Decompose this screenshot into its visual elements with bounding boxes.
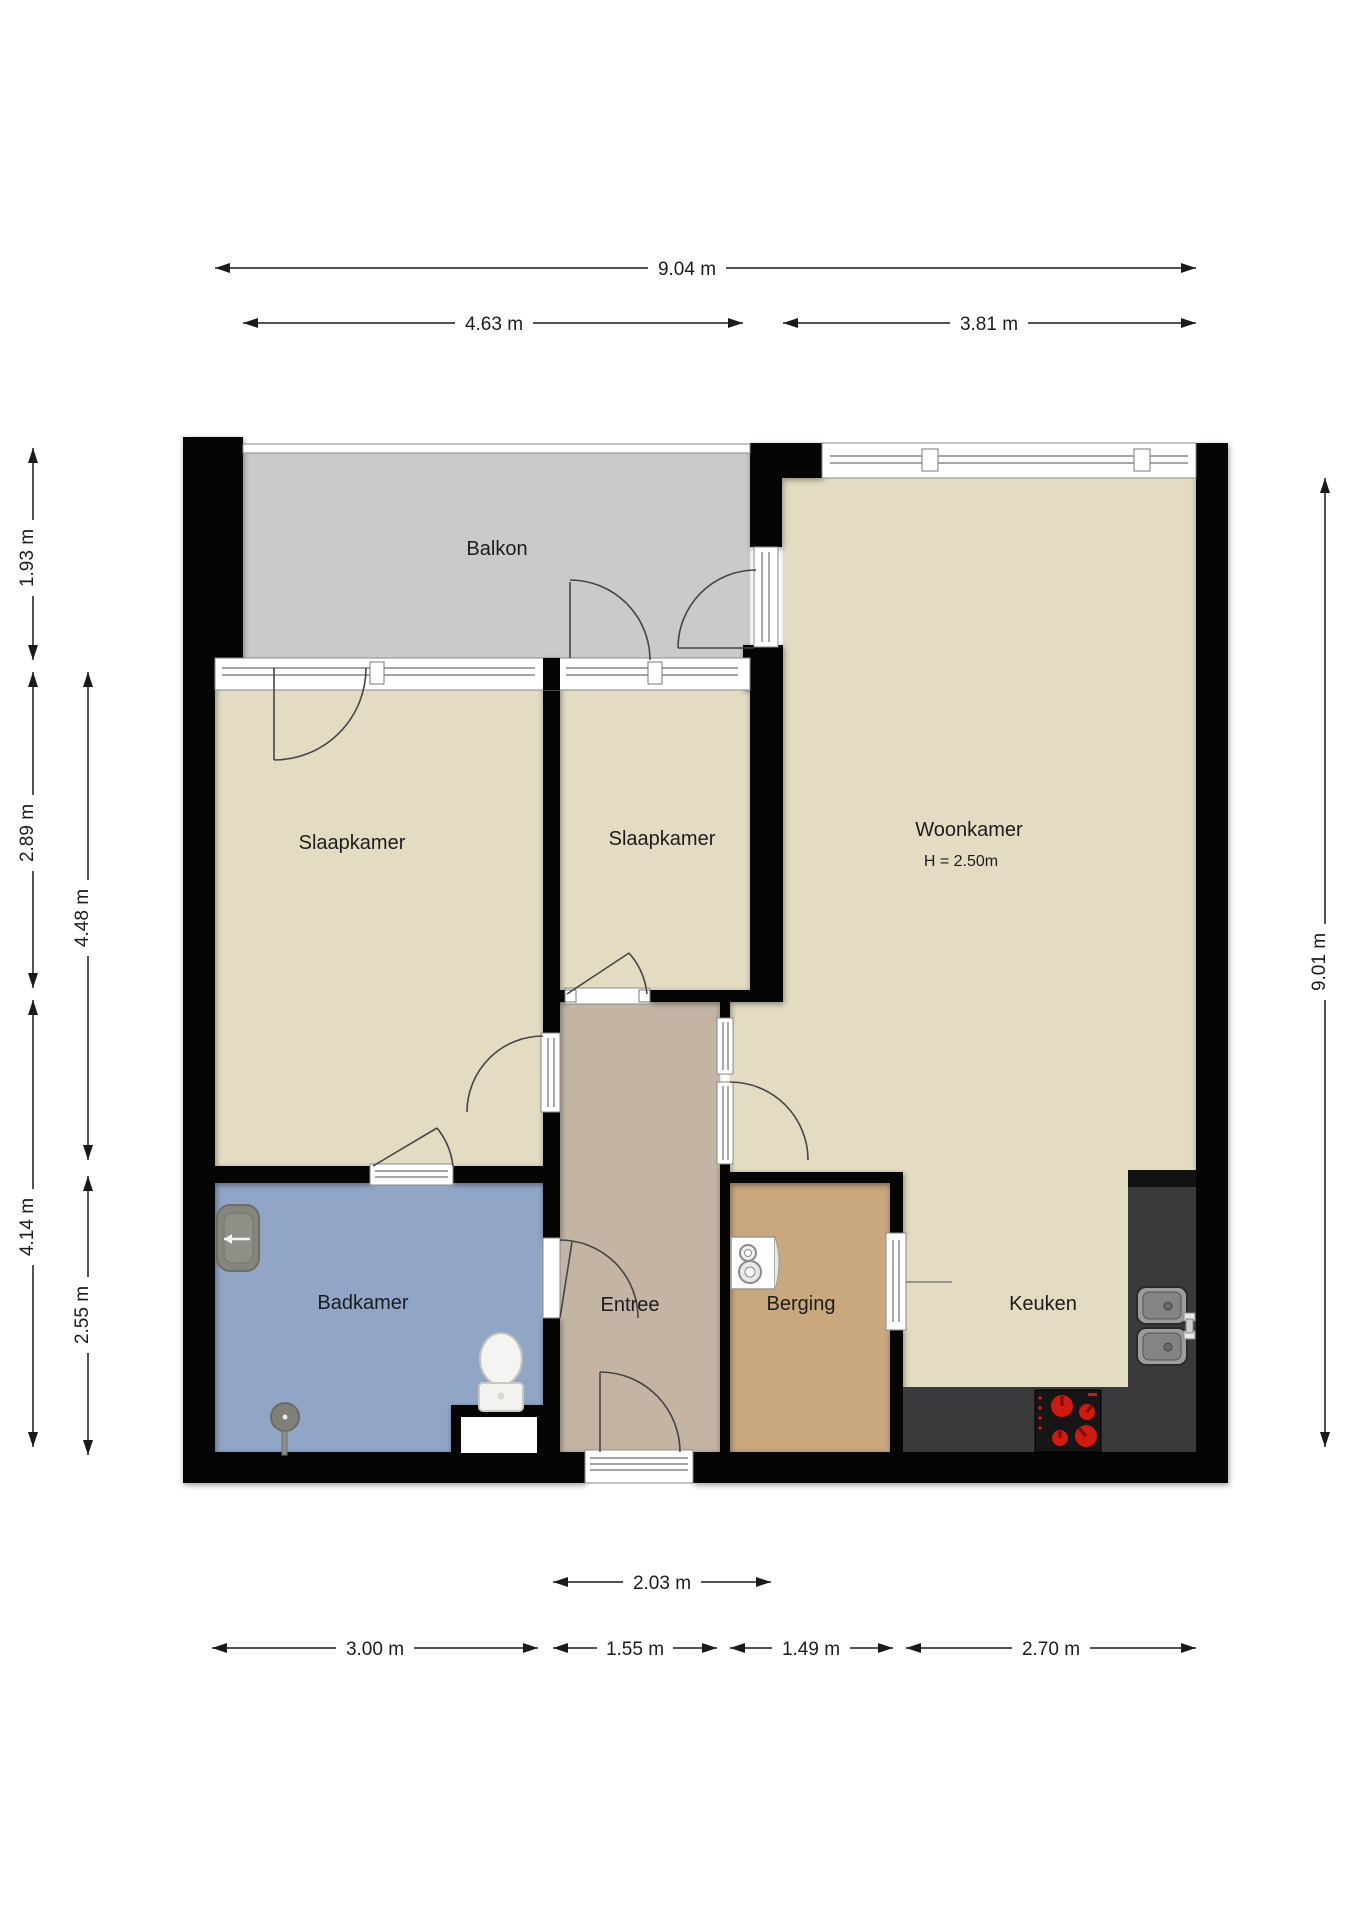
window-mullion bbox=[370, 662, 384, 684]
dim-label: 1.93 m bbox=[17, 529, 38, 587]
wall-outer-bottom-left bbox=[183, 1452, 585, 1483]
room-height-note: H = 2.50m bbox=[924, 853, 998, 870]
dim-label: 3.81 m bbox=[960, 314, 1018, 335]
dim-left-bedroom2: 2.89 m bbox=[17, 672, 38, 988]
dim-bottom-entree: 1.55 m bbox=[553, 1639, 717, 1660]
room-label-slaapkamer-1: Slaapkamer bbox=[299, 832, 406, 854]
window-bedrooms-band bbox=[215, 658, 750, 690]
dim-label: 4.48 m bbox=[72, 889, 93, 947]
wall-livingroom-left-lower bbox=[750, 690, 783, 1002]
berging-door-glazing bbox=[886, 1233, 906, 1330]
dim-top-right-section: 3.81 m bbox=[783, 314, 1196, 335]
dim-top-total: 9.04 m bbox=[215, 259, 1196, 280]
dim-bottom-bathroom: 3.00 m bbox=[212, 1639, 538, 1660]
window-mullion bbox=[648, 662, 662, 684]
entree-floor bbox=[560, 1002, 720, 1452]
washbasin-icon bbox=[217, 1205, 259, 1271]
window-mullion bbox=[1134, 449, 1150, 471]
wall-outer-right bbox=[1196, 443, 1228, 1483]
wall-outer-left bbox=[183, 437, 215, 1483]
wall-livingroom-left-upper bbox=[750, 443, 782, 547]
wall-bathroom-top-b bbox=[453, 1166, 543, 1183]
dim-label: 2.03 m bbox=[633, 1573, 691, 1594]
wall-bedroom2-bottom-a bbox=[543, 990, 565, 1002]
cooktop-icon bbox=[1035, 1390, 1101, 1452]
kitchen-faucet-icon bbox=[1184, 1313, 1195, 1339]
window-mullion bbox=[922, 449, 938, 471]
dim-bottom-kitchen: 2.70 m bbox=[906, 1639, 1196, 1660]
floorplan-page: Balkon Slaapkamer Slaapkamer Woonkamer H… bbox=[0, 0, 1358, 1920]
front-door-threshold bbox=[585, 1450, 693, 1483]
bathroom-entree-door-opening bbox=[543, 1238, 560, 1318]
bedroom-1-floor bbox=[215, 688, 543, 1168]
bathroom-bedroom1-door-glazing bbox=[370, 1164, 453, 1185]
dim-label: 4.14 m bbox=[17, 1198, 38, 1256]
dim-label: 9.01 m bbox=[1309, 933, 1330, 991]
wall-berging-top bbox=[730, 1172, 903, 1183]
dim-label: 2.70 m bbox=[1022, 1639, 1080, 1660]
wall-bathroom-top-a bbox=[183, 1166, 370, 1183]
dim-top-left-section: 4.63 m bbox=[243, 314, 743, 335]
dim-left-bathroom: 2.55 m bbox=[72, 1176, 93, 1455]
wall-entree-right-b bbox=[720, 1163, 730, 1452]
entree-livingroom-door-glazing bbox=[717, 1082, 733, 1164]
kitchen-counter-end bbox=[1128, 1170, 1196, 1187]
dim-left-entree-column: 4.14 m bbox=[17, 1000, 38, 1447]
room-label-entree: Entree bbox=[601, 1294, 660, 1316]
toilet-icon bbox=[479, 1333, 523, 1411]
dim-label: 1.55 m bbox=[606, 1639, 664, 1660]
vanity-basin bbox=[461, 1417, 537, 1453]
wall-outer-bottom-right bbox=[693, 1452, 1228, 1483]
room-label-balkon: Balkon bbox=[466, 538, 527, 560]
boiler-washing-machine-icon bbox=[731, 1237, 779, 1289]
dim-label: 1.49 m bbox=[782, 1639, 840, 1660]
balcony-railing bbox=[243, 444, 750, 453]
dim-label: 2.89 m bbox=[17, 804, 38, 862]
dim-label: 2.55 m bbox=[72, 1286, 93, 1344]
wall-bedroom1-bedroom2 bbox=[543, 690, 560, 990]
wall-berging-right-a bbox=[890, 1172, 903, 1235]
wall-berging-right-b bbox=[890, 1328, 903, 1452]
room-label-berging: Berging bbox=[767, 1293, 836, 1315]
wall-entree-right-a bbox=[720, 1002, 730, 1020]
room-label-badkamer: Badkamer bbox=[317, 1292, 408, 1314]
floorplan-drawing: Balkon Slaapkamer Slaapkamer Woonkamer H… bbox=[0, 0, 1358, 1920]
bedroom2-door-opening bbox=[565, 988, 650, 1004]
dim-bottom-berging: 1.49 m bbox=[730, 1639, 893, 1660]
balcony-door-livingroom-glazing bbox=[754, 547, 778, 647]
wall-bedroom2-bottom-b bbox=[650, 990, 750, 1002]
room-label-keuken: Keuken bbox=[1009, 1293, 1077, 1315]
bedroom1-door-glazing bbox=[541, 1033, 560, 1112]
dim-label: 9.04 m bbox=[658, 259, 716, 280]
wall-entree-left-b bbox=[543, 1318, 560, 1452]
room-label-woonkamer: Woonkamer bbox=[915, 819, 1023, 841]
dim-label: 3.00 m bbox=[346, 1639, 404, 1660]
entree-livingroom-glazing-top bbox=[717, 1018, 733, 1074]
dim-left-balcony: 1.93 m bbox=[17, 448, 38, 660]
room-label-slaapkamer-2: Slaapkamer bbox=[609, 828, 716, 850]
wall-outer-left-thick-balcony bbox=[215, 437, 243, 662]
berging-floor bbox=[730, 1183, 890, 1452]
dim-right-total: 9.01 m bbox=[1309, 478, 1330, 1447]
dim-label: 4.63 m bbox=[465, 314, 523, 335]
dim-left-bedroom1: 4.48 m bbox=[72, 672, 93, 1160]
dim-bottom-entree-total: 2.03 m bbox=[553, 1573, 771, 1594]
